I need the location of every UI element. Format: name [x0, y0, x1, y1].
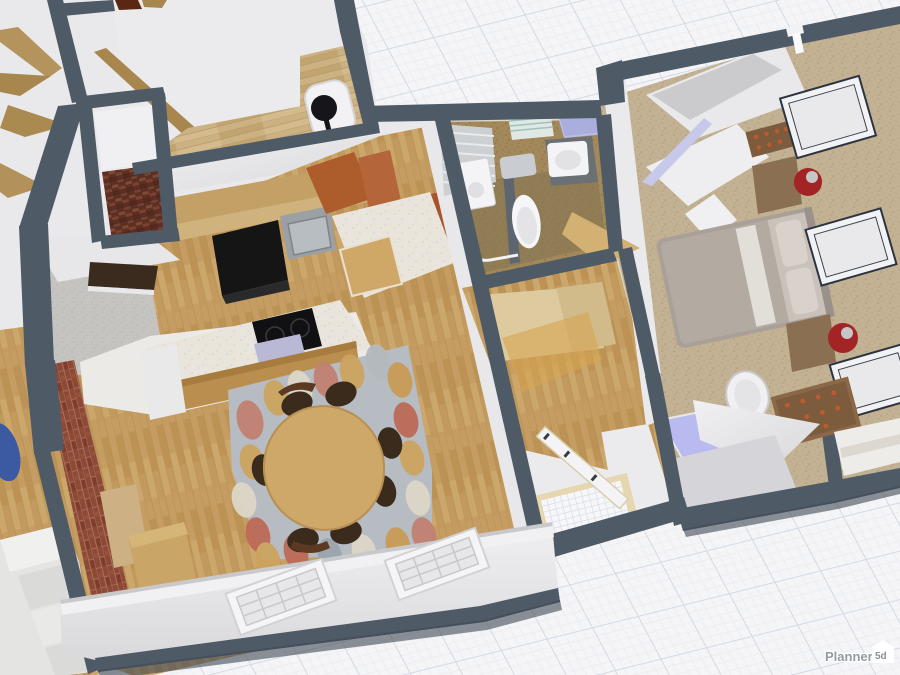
svg-text:5d: 5d: [875, 651, 887, 662]
svg-text:Planner: Planner: [825, 649, 873, 664]
